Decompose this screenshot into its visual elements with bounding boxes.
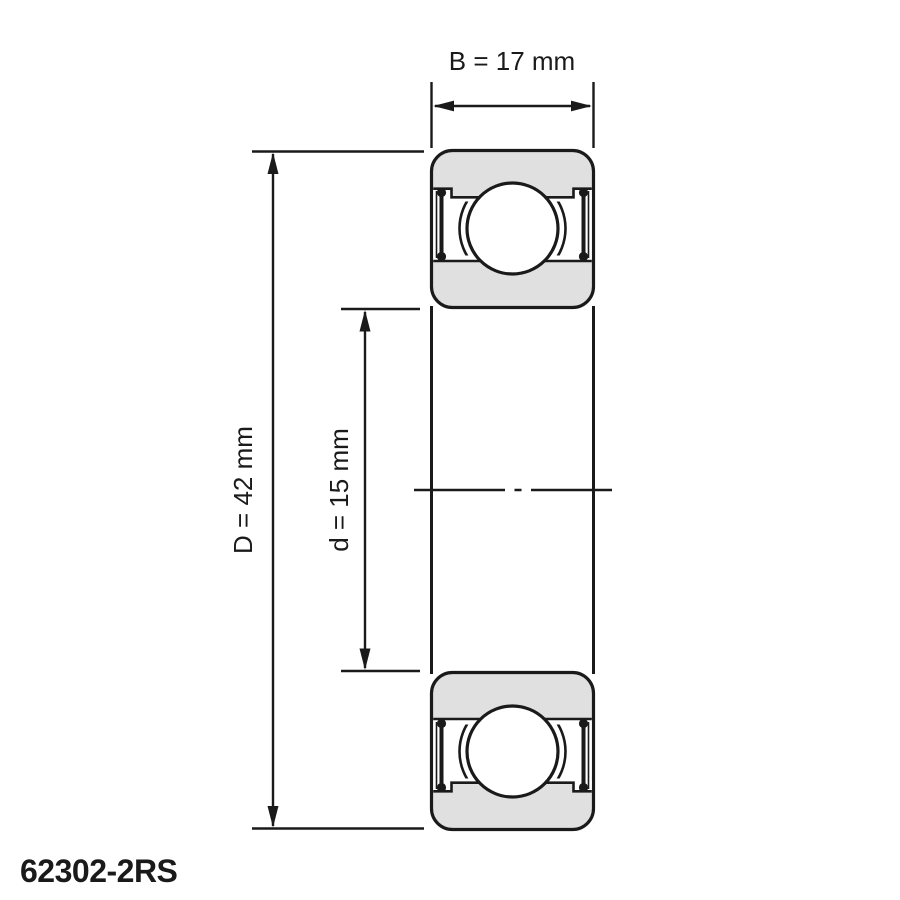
dimension-d-label: d = 15 mm [324, 428, 354, 552]
arrowhead-up [268, 153, 279, 175]
arrowhead-down [360, 649, 371, 671]
arrowhead-up [360, 310, 371, 332]
arrowhead-right [571, 101, 592, 112]
bearing-technical-drawing: B = 17 mm D = 42 mm d = 15 mm 62302-2RS [0, 0, 900, 900]
dimension-D-label: D = 42 mm [228, 426, 258, 554]
part-number-label: 62302-2RS [20, 853, 178, 889]
dimension-d: d = 15 mm [324, 309, 420, 671]
bearing-drawing-canvas: B = 17 mm D = 42 mm d = 15 mm 62302-2RS [0, 0, 900, 900]
arrowhead-down [268, 806, 279, 828]
arrowhead-left [433, 101, 454, 112]
dimension-B-label: B = 17 mm [449, 46, 575, 76]
top-bearing-section [432, 151, 594, 308]
bottom-bearing-section [432, 673, 594, 830]
dimension-B: B = 17 mm [432, 46, 594, 148]
